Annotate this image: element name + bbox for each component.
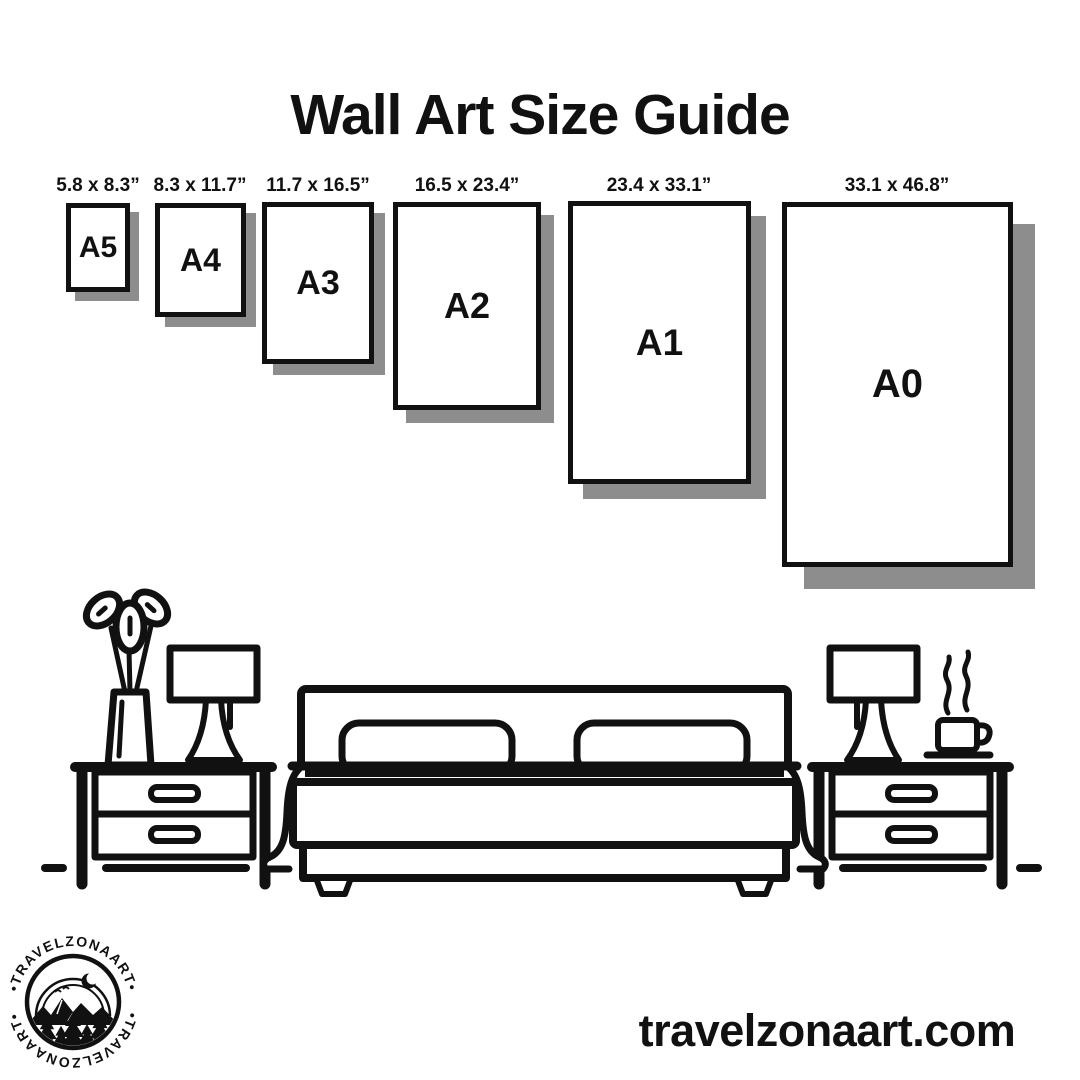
size-dimensions-a5: 5.8 x 8.3” xyxy=(56,175,139,197)
size-label-a4: A4 xyxy=(180,242,221,279)
coffee-mug-icon xyxy=(927,652,990,755)
size-label-a3: A3 xyxy=(296,264,339,303)
size-guide-poster: Wall Art Size Guide 5.8 x 8.3” 8.3 x 11.… xyxy=(0,0,1080,1080)
size-frame-a5: A5 xyxy=(66,203,130,292)
size-frame-a2: A2 xyxy=(393,202,541,410)
nightstand-icon xyxy=(812,767,1009,884)
size-dimensions-a0: 33.1 x 46.8” xyxy=(845,175,950,197)
nightstand-icon xyxy=(75,767,272,884)
size-frame-a1: A1 xyxy=(568,201,751,484)
size-label-a1: A1 xyxy=(636,322,683,364)
page-title: Wall Art Size Guide xyxy=(0,82,1080,148)
size-label-a2: A2 xyxy=(444,285,490,327)
size-label-a5: A5 xyxy=(79,231,117,265)
table-lamp-icon xyxy=(830,648,917,760)
size-dimensions-a3: 11.7 x 16.5” xyxy=(266,175,370,197)
size-frame-a4: A4 xyxy=(155,203,246,317)
double-bed-icon xyxy=(264,689,826,894)
brand-logo: •TRAVELZONAART• •TRAVELZONAART• xyxy=(5,928,141,1074)
website-url: travelzonaart.com xyxy=(580,1005,1074,1057)
size-label-a0: A0 xyxy=(872,362,923,407)
size-dimensions-a4: 8.3 x 11.7” xyxy=(154,175,247,197)
table-lamp-icon xyxy=(170,648,257,760)
flower-vase-icon xyxy=(80,586,174,765)
size-dimensions-a1: 23.4 x 33.1” xyxy=(607,175,712,197)
size-frame-a3: A3 xyxy=(262,202,374,364)
bedroom-illustration xyxy=(35,585,1045,905)
size-dimensions-a2: 16.5 x 23.4” xyxy=(415,175,520,197)
size-frame-a0: A0 xyxy=(782,202,1013,567)
